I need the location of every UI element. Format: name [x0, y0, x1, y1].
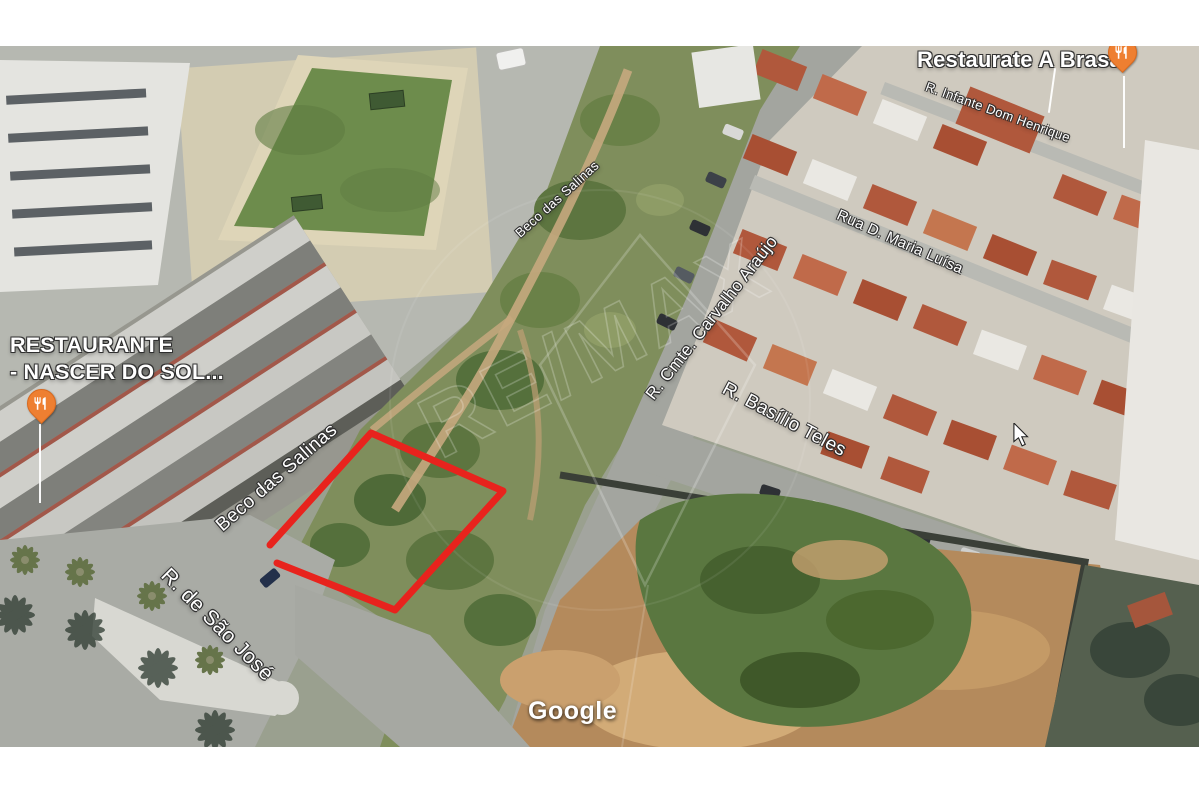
container-green-2: [291, 194, 322, 211]
place-label-nascer-do-sol[interactable]: RESTAURANTE - NASCER DO SOL...: [10, 332, 224, 386]
place-label-nascer-line1: RESTAURANTE: [10, 332, 224, 359]
top-white-bar: [0, 0, 1199, 46]
mouse-cursor: [1012, 423, 1030, 447]
google-logo[interactable]: Google: [528, 697, 617, 726]
place-label-nascer-line2: - NASCER DO SOL...: [10, 359, 224, 386]
pin-stem-a-brasa: [1123, 76, 1125, 148]
screenshot-root: RE/MAX Beco das Salinas Beco das Salinas…: [0, 0, 1199, 800]
fork-knife-icon: [33, 396, 48, 411]
place-label-a-brasa[interactable]: Restaurate A Brasa: [917, 47, 1122, 73]
white-building-top: [691, 44, 760, 108]
bottom-white-bar: [0, 747, 1199, 800]
fork-knife-icon: [1114, 45, 1129, 60]
container-green: [369, 90, 404, 109]
pin-stem-nascer: [39, 424, 41, 503]
